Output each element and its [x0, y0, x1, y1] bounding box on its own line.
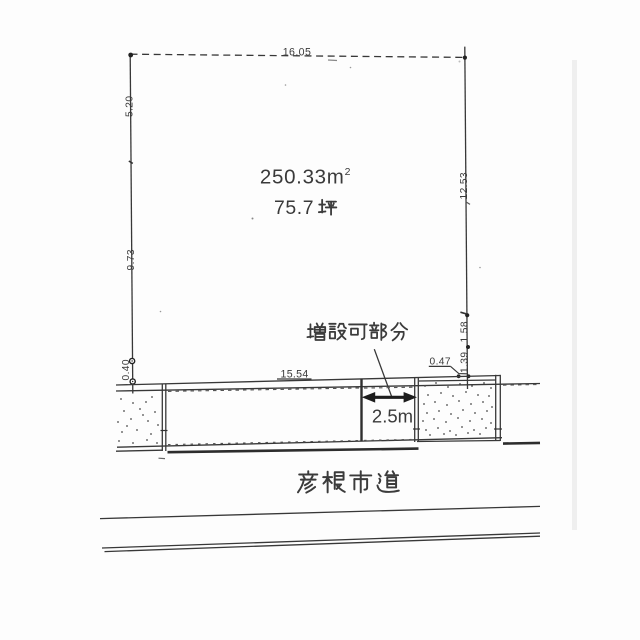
svg-text:16.05: 16.05	[283, 47, 312, 59]
svg-text:9.73: 9.73	[126, 249, 137, 270]
svg-text:1.39: 1.39	[459, 352, 470, 373]
svg-text:2.5m: 2.5m	[372, 405, 413, 426]
svg-text:250.33m2: 250.33m2	[260, 166, 351, 189]
svg-text:5.20: 5.20	[125, 96, 136, 117]
svg-text:0.40: 0.40	[121, 359, 132, 380]
svg-text:75.7: 75.7	[274, 197, 314, 219]
svg-text:1.58: 1.58	[459, 321, 470, 342]
svg-text:12.53: 12.53	[459, 172, 470, 200]
